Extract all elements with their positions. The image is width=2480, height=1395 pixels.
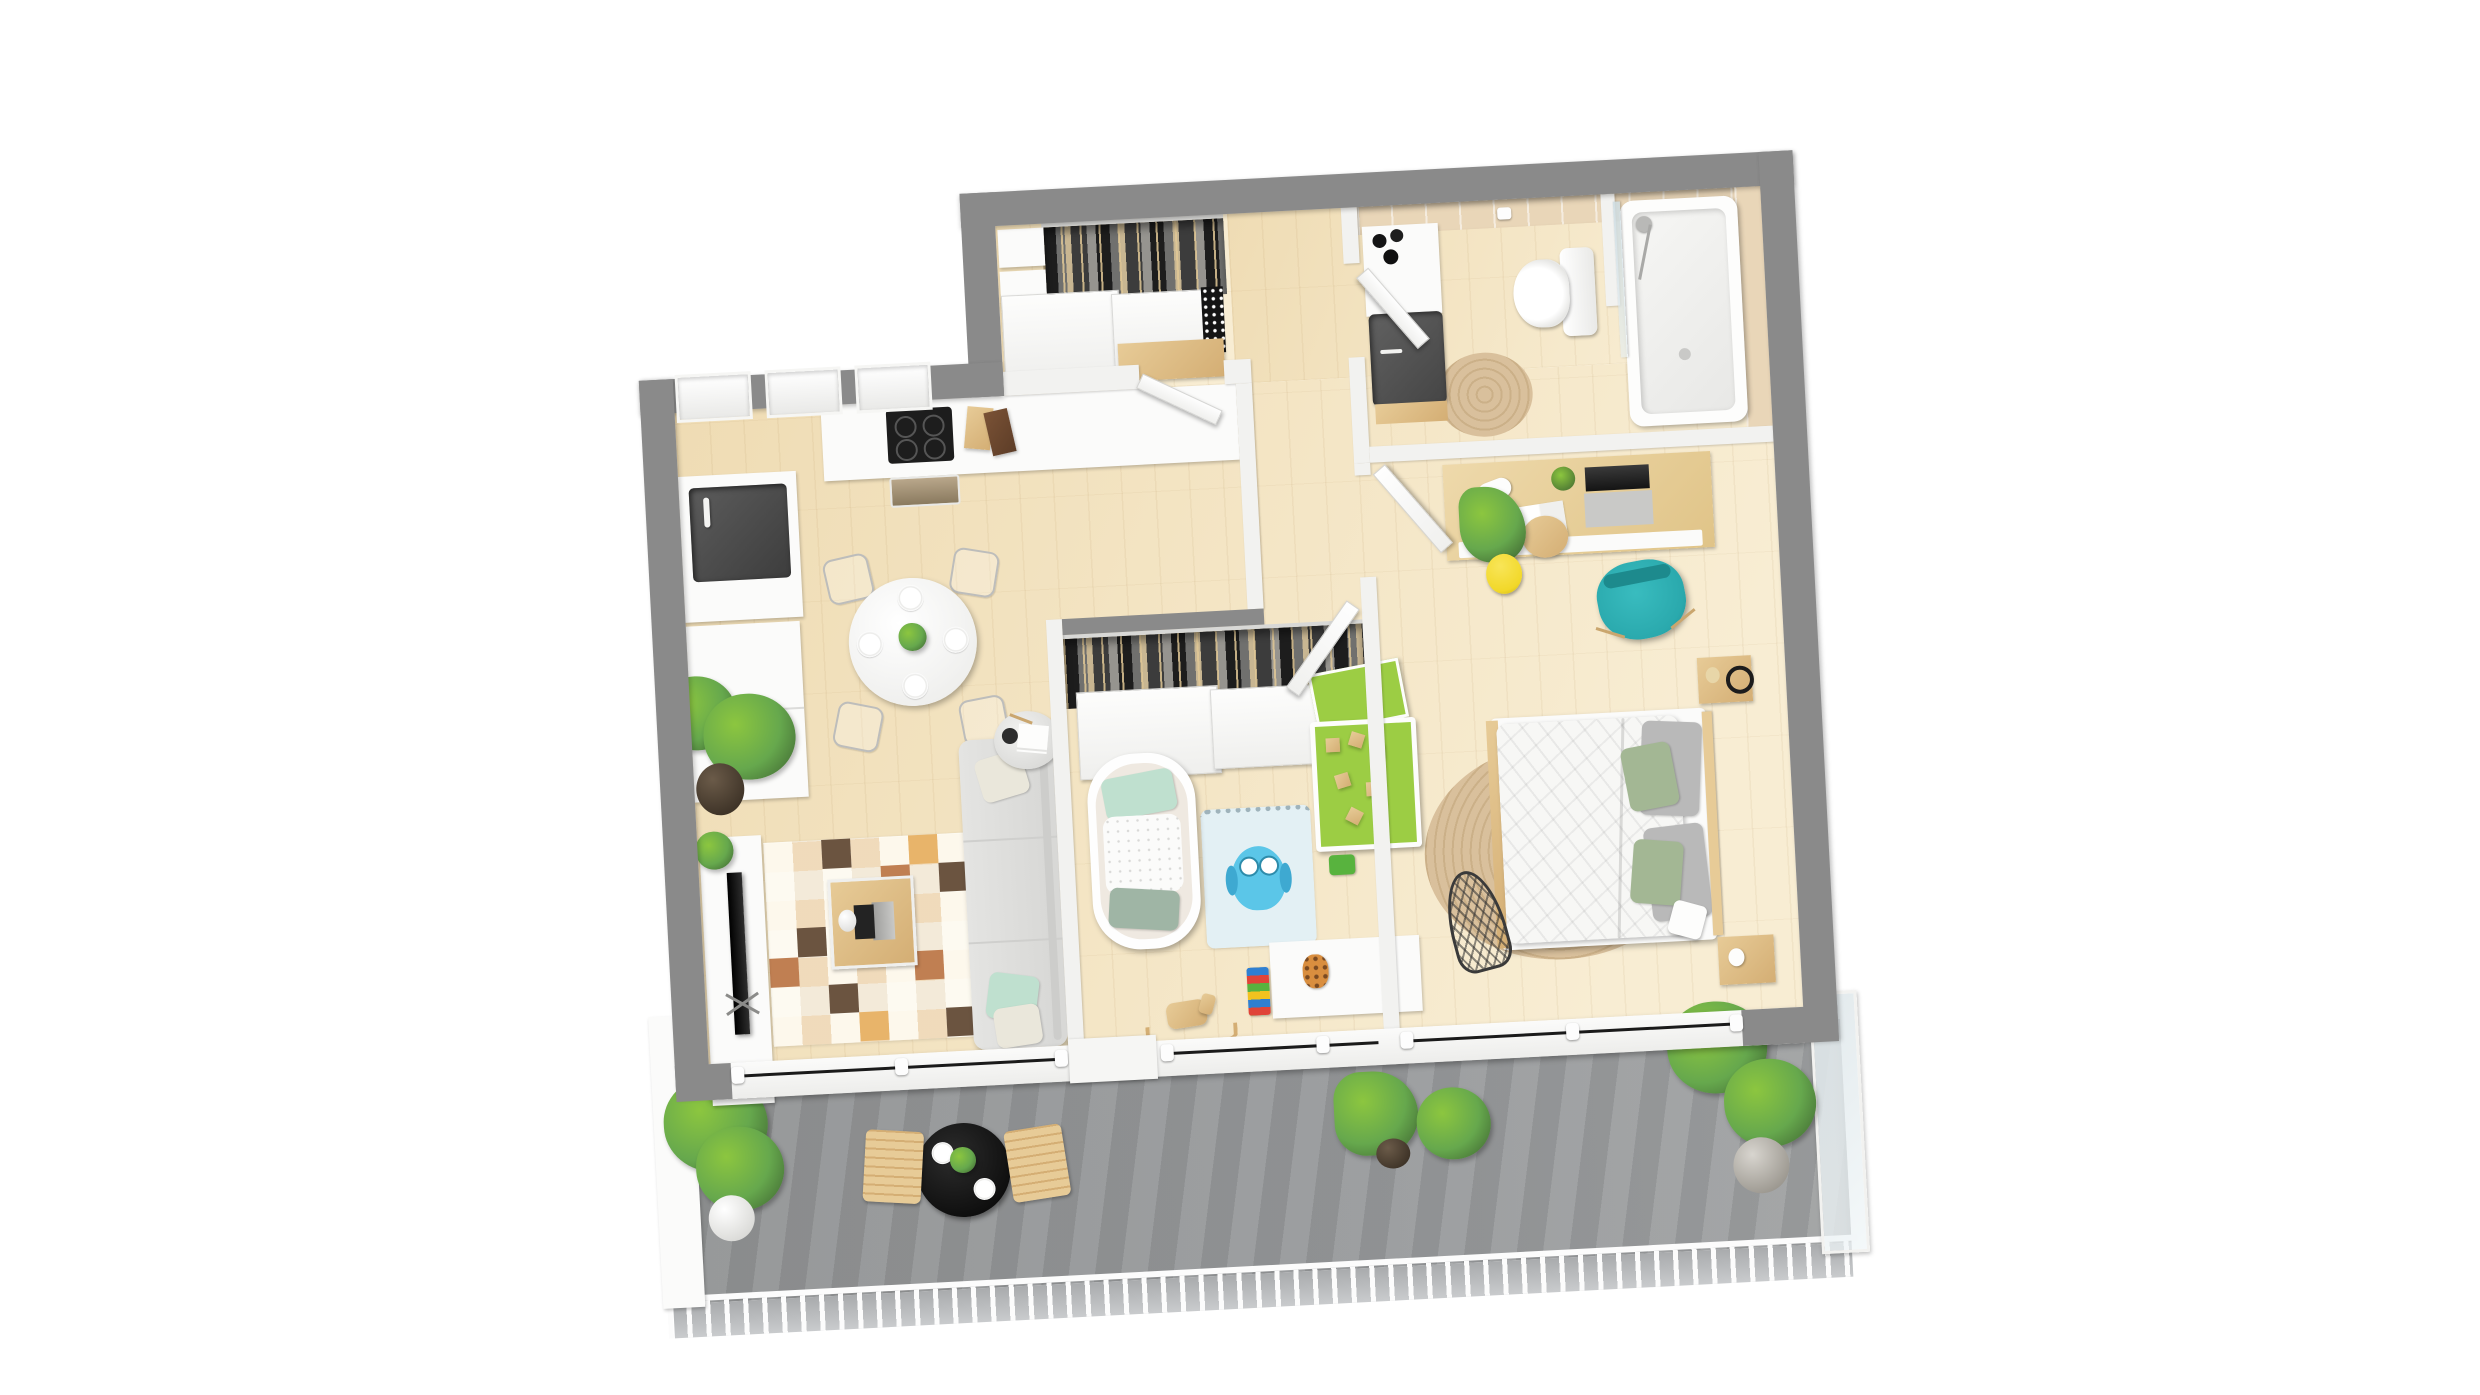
toiletry-bottle-3 xyxy=(1383,249,1399,265)
window-post-7 xyxy=(1566,1023,1580,1041)
wall-entry-south-east xyxy=(1224,359,1252,384)
toilet-paper-holder xyxy=(1497,207,1512,220)
sofa xyxy=(958,736,1068,1050)
nursery-owl-rug xyxy=(1200,804,1317,949)
crib-pillow-sage xyxy=(1108,887,1180,931)
kitchen-window-2 xyxy=(764,366,842,418)
nightstand-north xyxy=(1697,655,1753,704)
crib xyxy=(1085,750,1203,951)
desk-laptop-keyboard xyxy=(1584,490,1654,528)
play-table xyxy=(1310,717,1423,852)
coffee-table xyxy=(827,875,918,969)
window-post-3 xyxy=(1054,1049,1068,1067)
desk-plant xyxy=(1551,466,1576,491)
sofa-pillow-cream xyxy=(992,1003,1044,1050)
bathtub xyxy=(1619,195,1749,427)
wall-south-corner-west xyxy=(675,1063,733,1102)
window-post-2 xyxy=(895,1058,909,1076)
induction-hob xyxy=(886,407,955,464)
toiletry-bottle-2 xyxy=(1390,229,1404,243)
vanity-faucet xyxy=(1380,349,1402,354)
window-post-1 xyxy=(731,1066,745,1084)
oven-front xyxy=(889,474,960,508)
page: { "scene": { "title": "3D rendered top-d… xyxy=(0,0,2480,1395)
bistro-chair-left xyxy=(862,1129,924,1204)
window-post-4 xyxy=(1160,1044,1174,1062)
window-post-8 xyxy=(1729,1014,1743,1032)
floor-plan xyxy=(569,136,1929,1382)
owl-wing-2 xyxy=(1279,862,1293,893)
toiletry-bottle xyxy=(1372,234,1387,249)
kitchen-window-3 xyxy=(854,362,932,414)
dining-chair-ne xyxy=(948,546,1001,599)
block-tower xyxy=(1246,967,1270,1016)
magazines xyxy=(1017,724,1049,751)
bistro-chair-right xyxy=(1003,1123,1072,1203)
toy-storage xyxy=(1269,935,1423,1019)
coffee-laptop-keyboard xyxy=(854,904,876,939)
side-table-lamp xyxy=(1001,728,1018,745)
vanity-wood-base xyxy=(1375,401,1448,425)
bed-pillow-sage-bottom xyxy=(1630,839,1684,906)
south-wall-pier xyxy=(1068,1035,1158,1084)
nightstand-south xyxy=(1717,934,1775,985)
wall-bedroom-west-upper xyxy=(1354,463,1371,476)
entry-cabinet-upper xyxy=(997,228,1045,268)
toy-truck xyxy=(1329,854,1356,875)
carafe xyxy=(1728,948,1745,967)
wall-bathroom-west-upper xyxy=(1341,207,1360,264)
vase-small xyxy=(1705,667,1720,684)
window-post-5 xyxy=(1316,1036,1330,1054)
kitchen-window-1 xyxy=(675,371,753,423)
wall-south-corner-east xyxy=(1741,1005,1839,1046)
dining-chair-sw xyxy=(831,700,885,754)
crib-duvet xyxy=(1102,813,1184,895)
window-post-6 xyxy=(1400,1031,1414,1049)
headphones xyxy=(1725,665,1754,694)
giraffe-plush xyxy=(1302,954,1330,989)
desk-laptop-screen xyxy=(1585,464,1650,491)
vanity-counter xyxy=(1362,223,1443,317)
